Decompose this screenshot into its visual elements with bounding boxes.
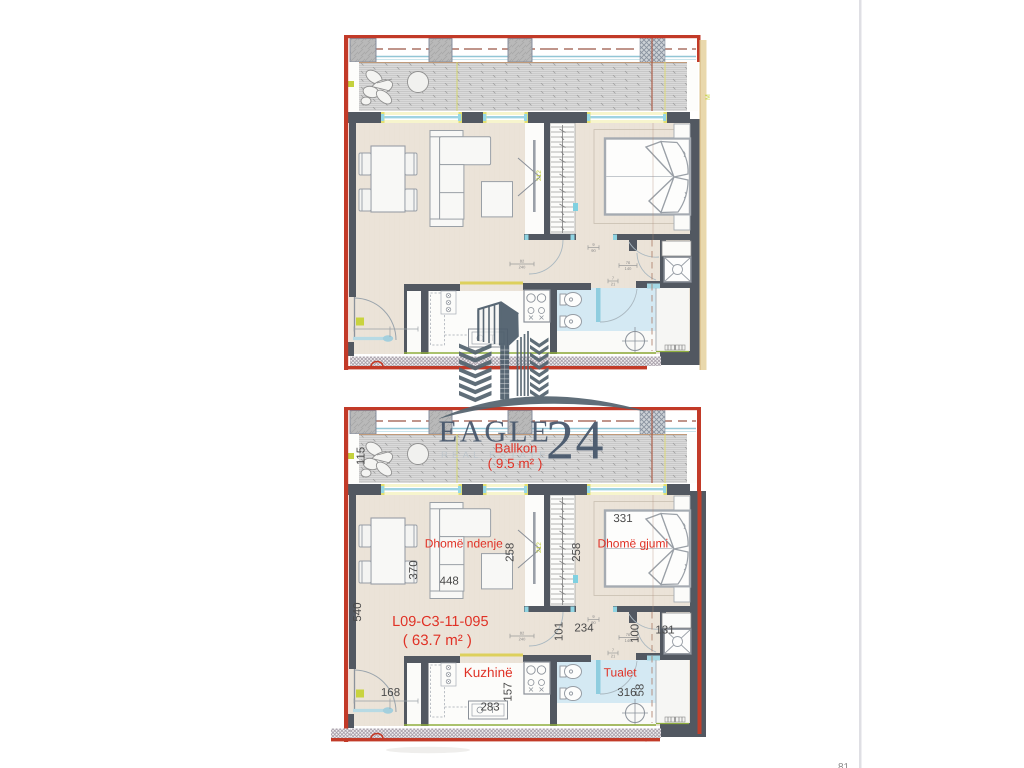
svg-text:331: 331 xyxy=(613,513,632,525)
svg-text:234: 234 xyxy=(574,623,594,635)
svg-text:115: 115 xyxy=(356,447,368,465)
svg-text:283: 283 xyxy=(481,702,500,714)
svg-text:168: 168 xyxy=(381,687,400,699)
svg-text:( 9.5 m² ): ( 9.5 m² ) xyxy=(488,456,543,471)
svg-text:157: 157 xyxy=(503,682,515,701)
svg-text:M: M xyxy=(705,94,712,100)
svg-text:Dhomë gjumi: Dhomë gjumi xyxy=(597,537,668,551)
svg-text:258: 258 xyxy=(505,543,517,562)
svg-text:Dhomë ndenje: Dhomë ndenje xyxy=(425,537,503,551)
svg-text:Tualet: Tualet xyxy=(604,666,638,680)
svg-text:101: 101 xyxy=(553,622,565,641)
svg-text:24: 24 xyxy=(546,410,605,472)
svg-text:258: 258 xyxy=(571,543,583,562)
svg-text:131: 131 xyxy=(655,625,674,637)
svg-text:Kuzhinë: Kuzhinë xyxy=(464,665,513,680)
svg-text:58: 58 xyxy=(635,684,647,697)
svg-text:370: 370 xyxy=(408,560,420,579)
svg-text:448: 448 xyxy=(440,576,459,588)
svg-text:L09-C3-11-095: L09-C3-11-095 xyxy=(392,614,488,630)
svg-text:81: 81 xyxy=(838,762,850,768)
svg-text:100: 100 xyxy=(630,624,642,643)
svg-text:Ballkon: Ballkon xyxy=(495,441,538,456)
svg-text:540: 540 xyxy=(352,602,364,621)
svg-text:( 63.7 m² ): ( 63.7 m² ) xyxy=(403,632,472,649)
